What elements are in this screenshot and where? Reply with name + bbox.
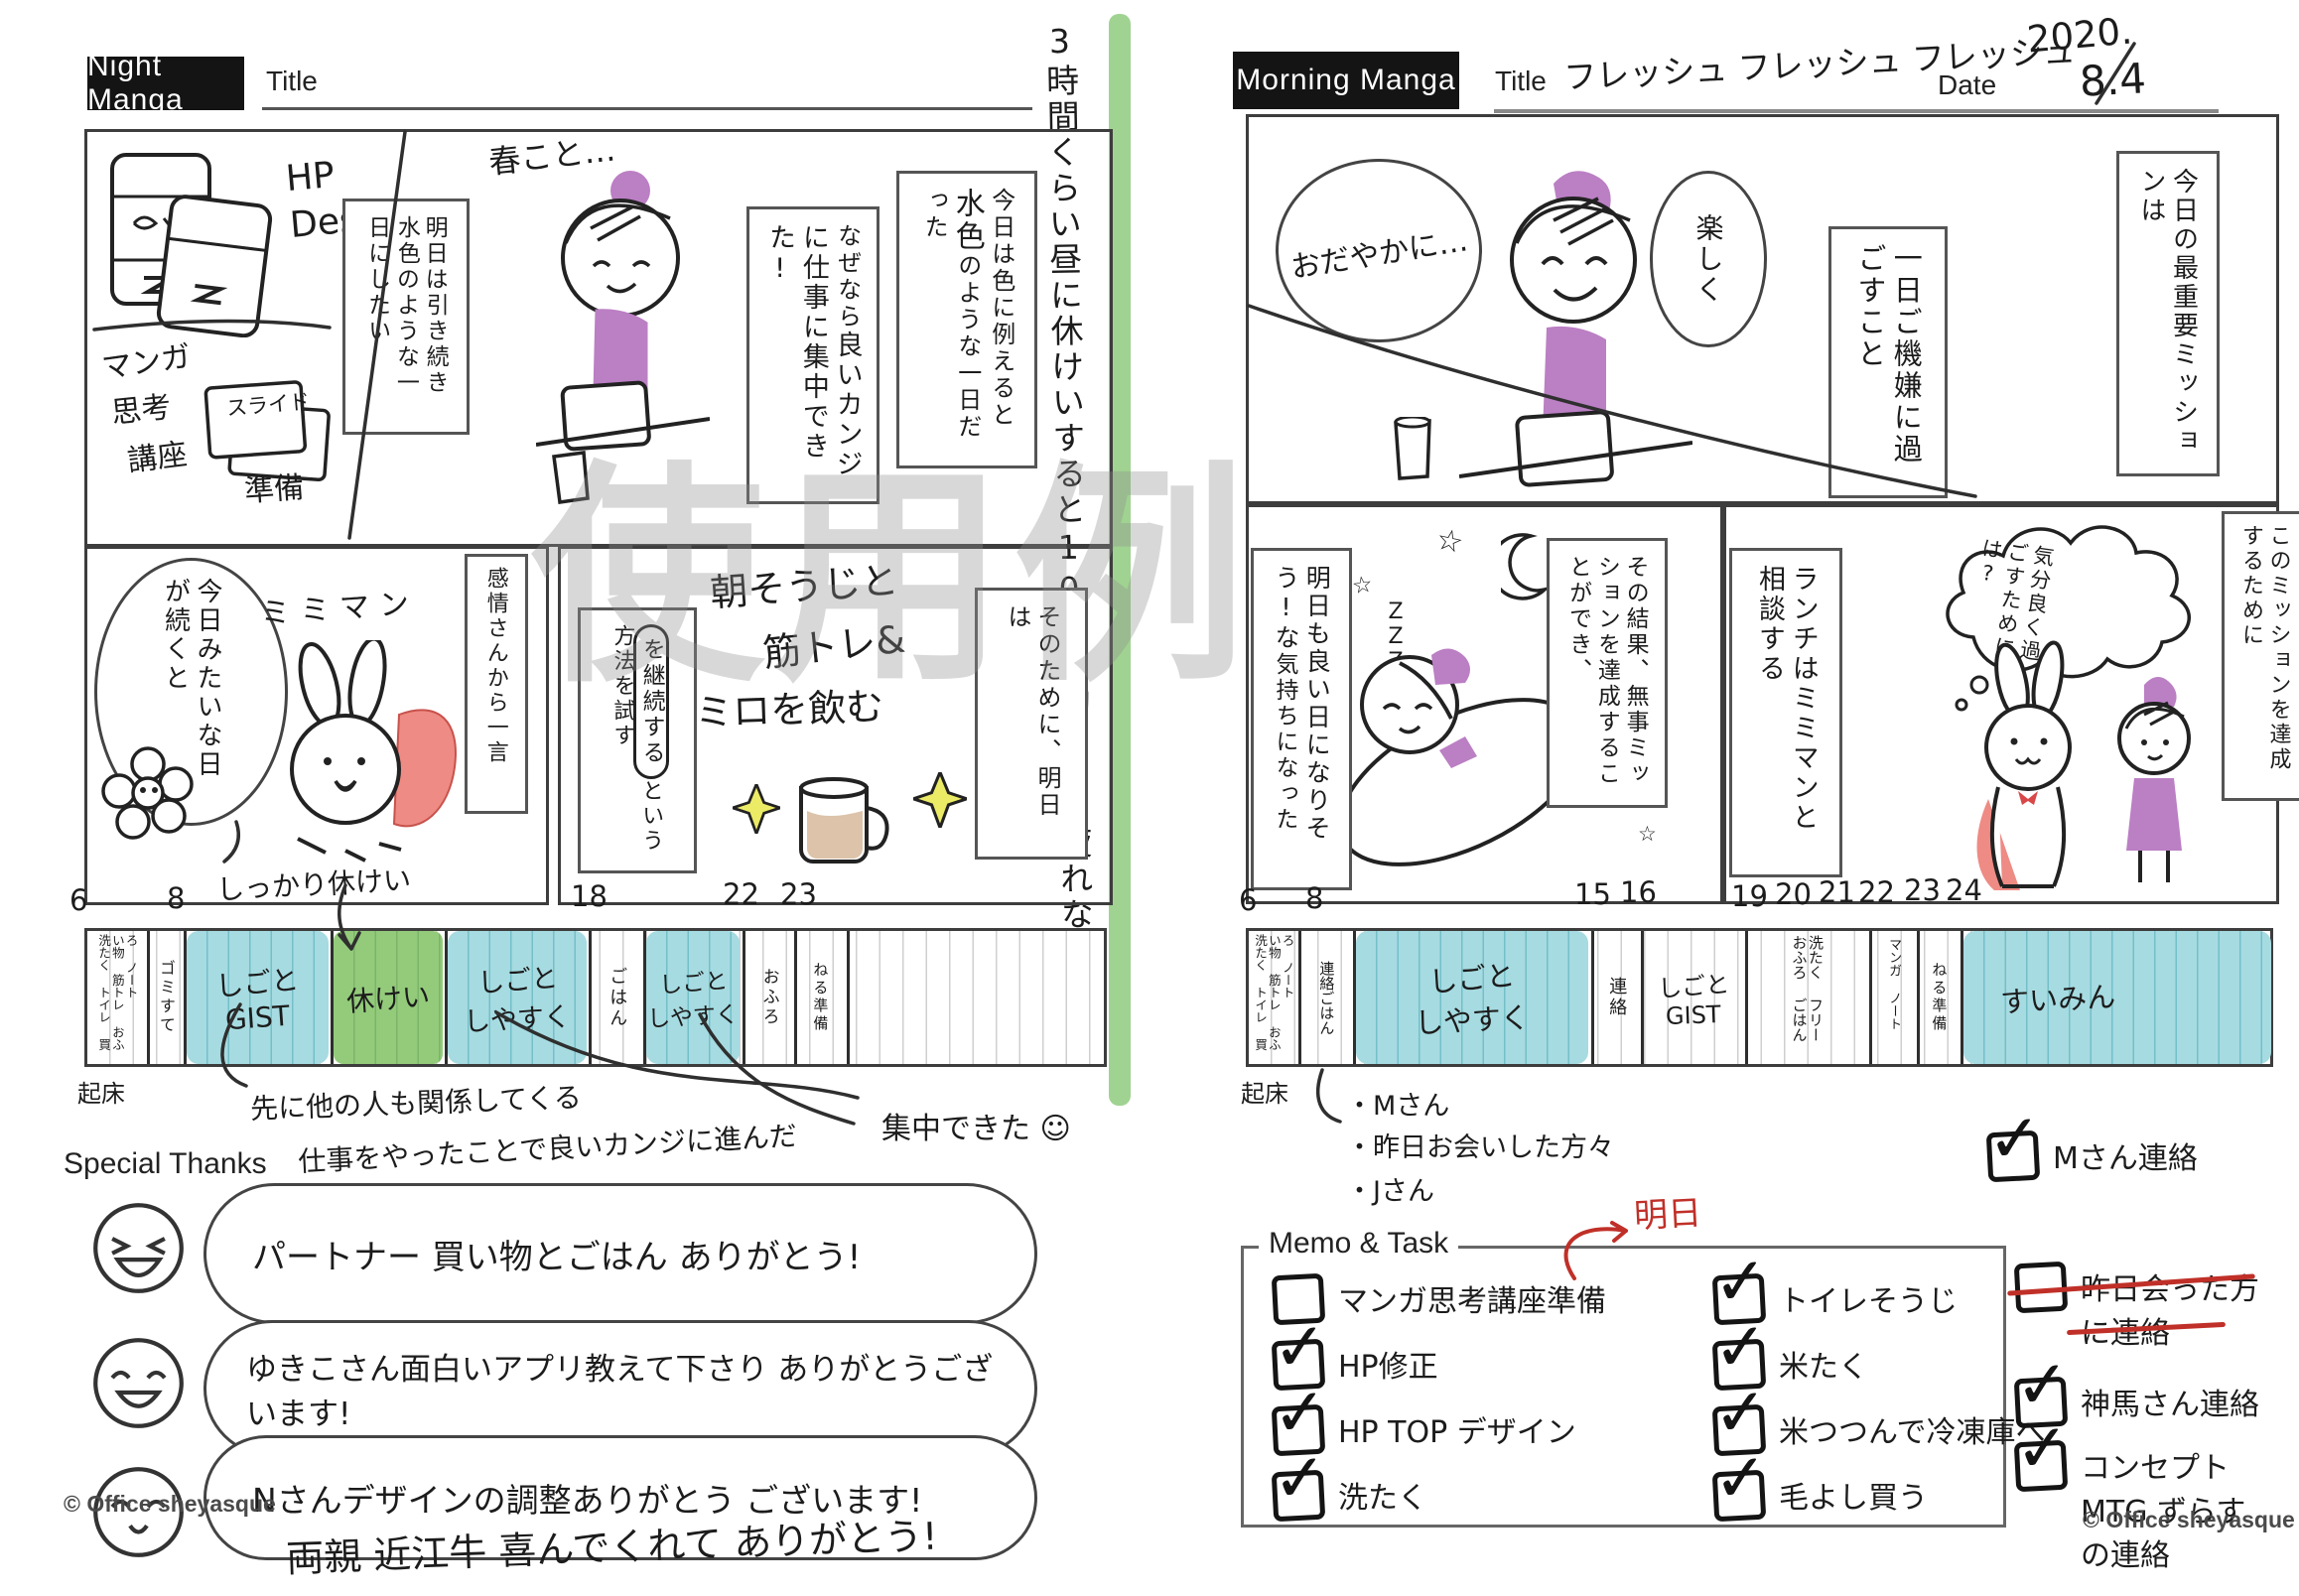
morning-title-value: フレッシュ フレッシュ フレッシュ	[1562, 25, 2077, 99]
checkbox-checked-icon	[1272, 1470, 1326, 1523]
today-hand-color: 水色	[950, 188, 985, 253]
smiling-face-icon	[91, 1336, 186, 1430]
checkbox-checked-icon	[1986, 1130, 2041, 1183]
morning-seg-morning-routine: 洗たく トイレ 買い物 筋トレ おふろ ノート	[1251, 931, 1296, 1064]
for-mission-label-box: このミッションを達成するために	[2222, 511, 2299, 801]
checkbox-checked-icon	[1712, 1470, 1767, 1523]
task-label: トイレそうじ	[1779, 1274, 1958, 1320]
night-hour-18: 18	[571, 879, 608, 913]
method-box: を継続するという方法を試す	[578, 607, 697, 873]
morning-bullet-1: ・Mさん	[1346, 1084, 1449, 1123]
continue-circled-hand: を継続する	[633, 624, 669, 779]
night-manga-badge: Night Manga	[87, 57, 244, 110]
morning-hour-23: 23	[1904, 873, 1941, 907]
morning-speech-bubble-1: おだやかに…	[1276, 159, 1482, 342]
memo-red-note: 明日	[1633, 1185, 1702, 1237]
task-label: マンガ思考講座準備	[1338, 1274, 1606, 1320]
star-icon: ☆	[1638, 822, 1657, 847]
timeline-separator	[847, 931, 850, 1064]
night-title-underline	[262, 107, 1032, 110]
night-seg-sleep-prep: ねる準備	[797, 931, 843, 1064]
small-girl-sketch	[2102, 667, 2207, 895]
morning-seg-work2: しごと GIST	[1644, 931, 1742, 1064]
morning-seg-renraku-gohan: 連絡ごはん	[1301, 931, 1351, 1064]
morning-title-label: Title	[1495, 66, 1547, 97]
date-day-value: 8.4	[2079, 54, 2147, 105]
night-seg-gomi: ゴミすて	[150, 931, 182, 1064]
morning-hour-19: 19	[1731, 879, 1768, 913]
morning-hour-16: 16	[1620, 875, 1657, 909]
night-hour-6: 6	[69, 883, 87, 917]
night-note2: 集中できた ☺	[881, 1104, 1071, 1147]
morning-hour-21: 21	[1819, 875, 1855, 909]
cup-sketch	[1388, 417, 1437, 482]
copyright-right: © Office sheyasque	[2083, 1507, 2295, 1533]
mission-label-box: 今日の最重要ミッションは	[2116, 151, 2220, 476]
morning-hour-20: 20	[1775, 877, 1812, 911]
date-label: Date	[1938, 69, 1996, 101]
girl-at-desk-night	[536, 159, 710, 528]
milo-mug-sketch	[789, 766, 898, 880]
morning-hour-22: 22	[1858, 875, 1895, 909]
morning-timeline-bar: 洗たく トイレ 買い物 筋トレ おふろ ノート 連絡ごはん しごと しやすく 連…	[1246, 928, 2273, 1067]
tomorrow-wish-box: 明日は引き続き水色のような一日にしたい	[342, 199, 470, 435]
task-label: 洗たく	[1338, 1471, 1427, 1517]
night-seg-morning-routine: 洗たく トイレ 買い物 筋トレ おふろ ノート	[89, 931, 145, 1064]
checkbox-checked-icon	[2014, 1440, 2069, 1493]
tomorrow-hand-2: 水色	[393, 215, 419, 267]
morning-seg-work1: しごと しやすく	[1356, 931, 1588, 1064]
night-seg-dinner: ごはん	[592, 931, 641, 1064]
memo-task-row: 毛よし買う	[1713, 1471, 1928, 1521]
task-label: 毛よし買う	[1779, 1471, 1928, 1517]
morning-wake-label: 起床	[1241, 1074, 1288, 1109]
night-seg-work3: しごと しやすく	[646, 931, 740, 1064]
sparkle-icon	[913, 772, 967, 828]
morning-bullet-3: ・Jさん	[1346, 1169, 1434, 1208]
copyright-left: © Office sheyasque	[64, 1491, 276, 1518]
msan-renraku-task: Mさん連絡	[1987, 1131, 2198, 1181]
night-title-label: Title	[266, 66, 318, 97]
emotion-label-box: 感情さんから一言	[465, 554, 528, 814]
today-color-box: 今日は色に例えると水色のような一日だった	[896, 171, 1037, 468]
morning-hour-24: 24	[1946, 873, 1982, 907]
tomorrow-printed-prefix: 明日は	[422, 215, 448, 293]
today-printed-prefix: 今日は色に例えると	[988, 188, 1014, 429]
manga-course-note-3: 講座	[125, 430, 190, 480]
thanks-bubble-1: パートナー 買い物とごはん ありがとう!	[203, 1183, 1037, 1324]
night-seg-bath: おふろ	[745, 931, 791, 1064]
star-icon: ☆	[1350, 571, 1374, 600]
girl-at-desk-morning	[1459, 149, 1692, 504]
moon-icon	[1501, 532, 1549, 603]
morning-bullet-2: ・昨日お会いした方々	[1346, 1126, 1614, 1164]
feeling-box: 明日も良い日になりそう!な気持ちになった	[1251, 548, 1352, 890]
night-hour-23: 23	[780, 877, 817, 911]
rabbit-with-cape-sketch	[1961, 640, 2095, 898]
laughing-face-icon	[91, 1201, 186, 1295]
night-hour-8: 8	[167, 881, 185, 915]
reason-printed: なぜなら	[834, 223, 861, 331]
task-label: Mさん連絡	[2053, 1131, 2198, 1177]
morning-manga-badge: Morning Manga	[1233, 52, 1459, 109]
morning-plan-line3: ミロを飲む	[694, 676, 884, 737]
tomorrow-hand-1: 引き続き	[422, 293, 448, 396]
journal-page: 使用例 3時間くらい昼に休けいすると10時間働いても疲れない Night Man…	[0, 0, 2299, 1596]
flower-doodle	[91, 736, 205, 851]
date-year-value: 2020.	[2025, 9, 2133, 61]
morning-speech-bubble-2: 楽しく	[1650, 171, 1767, 347]
task-label: HP修正	[1338, 1340, 1438, 1386]
night-seg-rest: 休けい	[334, 931, 443, 1064]
lunch-box: ランチはミミマンと相談する	[1729, 548, 1842, 877]
manga-course-note-2: 思考	[109, 382, 173, 432]
for-that-box: そのために、明日は	[975, 588, 1088, 860]
night-timeline-bar: 洗たく トイレ 買い物 筋トレ おふろ ノート ゴミすて しごと GIST 休け…	[84, 928, 1107, 1067]
morning-seg-sleep: すいみん	[1963, 931, 2271, 1064]
rabbit-kokoman-sketch	[250, 640, 469, 883]
morning-seg-sleep-prep: ねる準備	[1920, 931, 1958, 1064]
morning-hour-6: 6	[1239, 883, 1257, 917]
morning-hour-8: 8	[1305, 881, 1323, 915]
memo-task-row: 洗たく	[1273, 1471, 1427, 1521]
task-label: 米つつんで冷凍庫へ	[1779, 1405, 2046, 1451]
night-note1-line2: 仕事をやったことで良いカンジに進んだ	[297, 1115, 798, 1180]
for-that-printed: そのために、明日は	[1002, 604, 1061, 843]
morning-hour-15: 15	[1574, 877, 1611, 911]
feeling-printed: 気持ちになった	[1273, 652, 1298, 833]
night-seg-work2: しごと しやすく	[448, 931, 587, 1064]
night-wake-label: 起床	[77, 1074, 125, 1109]
night-hour-22: 22	[723, 877, 759, 911]
special-thanks-label: Special Thanks	[64, 1147, 267, 1181]
bullets-arrow	[1318, 1070, 1340, 1122]
task-label: HP TOP デザイン	[1338, 1405, 1576, 1451]
task-label: 神馬さん連絡	[2081, 1378, 2259, 1423]
morning-seg-evening-routine: おふろ ごはん 洗たく フリー	[1748, 931, 1866, 1064]
night-seg-work1: しごと GIST	[187, 931, 329, 1064]
mission-hand-box: 一日ご機嫌に過ごすこと	[1828, 226, 1948, 498]
emotion-label-text: 感情さんから一言	[482, 567, 510, 801]
sparkle-icon	[733, 784, 780, 834]
morning-seg-renraku: 連絡	[1594, 931, 1638, 1064]
memo-task-label: Memo & Task	[1259, 1227, 1458, 1261]
task-label: 米たく	[1779, 1340, 1868, 1386]
hp-cards-sketch	[104, 149, 273, 337]
morning-seg-manga-note: マンガ ノート	[1872, 931, 1914, 1064]
result-label-box: その結果、無事ミッションを達成することができ、	[1547, 538, 1668, 808]
reason-box: なぜなら良いカンジに仕事に集中できた!	[746, 206, 879, 504]
junbi-note: 準備	[243, 463, 306, 510]
night-note1-line1: 先に他の人も関係してくる	[249, 1076, 582, 1128]
morning-title-underline	[1494, 109, 2219, 113]
